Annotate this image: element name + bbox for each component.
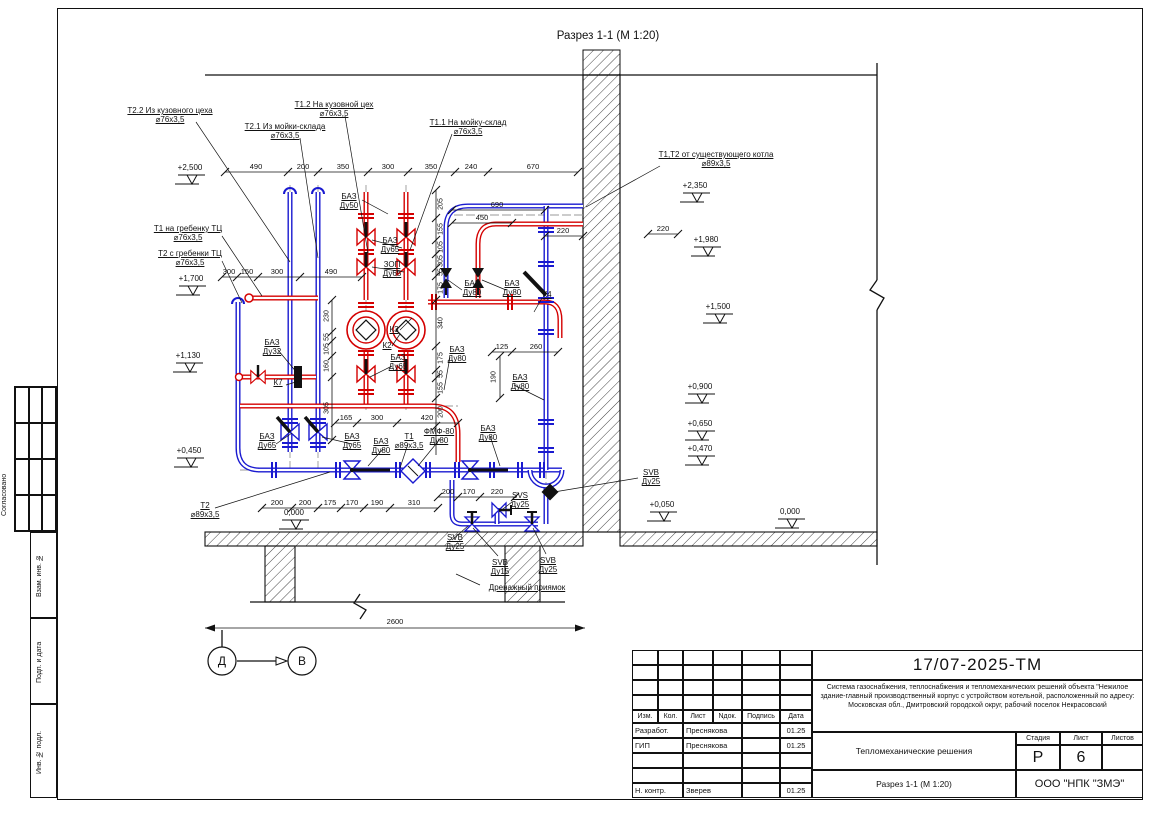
dimension-label: 300 [382,162,395,171]
strip-label-sign-date: Подп. и дата [36,626,43,698]
callout-k4: К4 [542,290,551,299]
elevation-mark: +1,700 [179,274,204,283]
dimension-label: 690 [491,200,504,209]
dimension-label: 310 [408,498,421,507]
callout-baz80-f: БАЗДу80 [479,424,498,442]
callout-baz65-a: БАЗДу65 [381,236,400,254]
view-marker-v: В [298,654,306,668]
tb-row-role [632,768,683,783]
dimension-label: 300 [223,267,236,276]
tb-col-podpis: Подпись [742,710,780,723]
approval-grid [14,386,57,532]
dimension-label: 55 [438,370,445,378]
tb-row-sign [742,768,780,783]
tb-company: ООО "НПК "ЗМЭ" [1016,770,1143,798]
dimension-label: 220 [557,226,570,235]
callout-k2: К2 [382,341,391,350]
callout-baz65-d: БАЗДу65 [343,432,362,450]
tb-row-date [780,753,812,768]
section-title: Разрез 1-1 (М 1:20) [557,30,659,42]
tb-col-izm: Изм. [632,710,658,723]
tb-row-role: Разработ. [632,723,683,738]
dimension-label: 300 [371,413,384,422]
dimension-label: 155 [438,382,445,394]
callout-svs25: SVSДу25 [511,491,530,509]
dimension-label: 240 [465,162,478,171]
tb-row-sign [742,753,780,768]
elevation-mark: +0,470 [688,444,713,453]
tb-col-ndok: Nдок. [713,710,742,723]
callout-svb25-b: SVBДу25 [446,533,465,551]
dimension-label-total: 2600 [387,617,404,626]
view-marker-d: Д [218,654,226,668]
callout-svb25-c: SVBДу25 [539,556,558,574]
dimension-label: 150 [241,267,254,276]
tb-row-date: 01.25 [780,783,812,798]
dimension-label: 200 [297,162,310,171]
valve-k7 [294,366,302,388]
callout-baz80-c: БАЗДу80 [448,345,467,363]
tb-sheet-value: 6 [1060,745,1102,770]
tb-doc-number: 17/07-2025-ТМ [812,650,1143,680]
tb-stage-value: Р [1016,745,1060,770]
tb-sheets-value [1102,745,1143,770]
callout-baz80-a: БАЗДу80 [463,279,482,297]
callout-baz80-b: БАЗДу80 [503,279,522,297]
callout-t2-pipe: Т2⌀89х3,5 [191,501,220,519]
dimension-label: 190 [371,498,384,507]
callout-baz65-b: БАЗДу65 [389,353,408,371]
callout-drain-pit: Дренажный приямок [489,583,565,592]
callout-baz80-e: БАЗДу80 [372,437,391,455]
callout-fmf80: ФМФ-80Ду80 [424,427,454,445]
dimension-label: 230 [324,310,331,322]
tb-row-name: Преснякова [683,738,742,753]
dimension-label: 190 [491,371,498,383]
dimension-label: 300 [271,267,284,276]
tb-row-sign [742,723,780,738]
tb-row-name [683,768,742,783]
dimension-label: 170 [463,487,476,496]
strip-label-inv-alt: Взам. инв. № [36,540,43,612]
drawing-sheet: Разрез 1-1 (М 1:20) Т2.2 Из кузовного це… [0,0,1152,813]
elevation-mark: +2,350 [683,181,708,190]
dimension-label: 105 [324,343,331,355]
dimension-label: 450 [476,213,489,222]
elevation-mark: +0,450 [177,446,202,455]
dimension-label: 350 [425,162,438,171]
elevation-mark: +0,050 [650,500,675,509]
callout-baz65-c: БАЗДу65 [258,432,277,450]
callout-t11: Т1.1 На мойку-склад⌀76х3,5 [430,118,507,136]
elevation-mark: +0,650 [688,419,713,428]
pit-wall-left [265,546,295,602]
callout-k3: К3 [389,325,398,334]
dimension-label: 420 [421,413,434,422]
tb-row-sign [742,738,780,753]
dimension-label: 350 [337,162,350,171]
dimension-label: 55 [324,333,331,341]
pump-k2 [347,311,385,349]
dimension-label: 220 [657,224,670,233]
dimension-label: 200 [299,498,312,507]
tb-row-sign [742,783,780,798]
dimension-label: 200 [438,406,445,418]
pit-wall-right [505,546,540,602]
tb-row-date: 01.25 [780,738,812,753]
title-block-empty-grid [632,650,812,710]
dimension-label: 260 [530,342,543,351]
dimension-label: 175 [324,498,337,507]
tb-view-title: Разрез 1-1 (М 1:20) [812,770,1016,798]
callout-boiler: Т1,Т2 от существующего котла⌀89х3,5 [659,150,774,168]
dimension-label: 305 [438,255,445,267]
tb-row-name: Зверев [683,783,742,798]
dimension-label: 170 [346,498,359,507]
dimension-label: 220 [491,487,504,496]
strip-label-approved: Согласовано [1,455,8,535]
tb-row-date: 01.25 [780,723,812,738]
elevation-mark: +1,500 [706,302,731,311]
dimension-label: 200 [271,498,284,507]
dimension-label: 200 [442,487,455,496]
callout-baz50: БАЗДу50 [340,192,359,210]
tb-row-name: Преснякова [683,723,742,738]
dimension-label: 155 [438,223,445,235]
dimension-label: 490 [250,162,263,171]
tb-description: Система газоснабжения, теплоснабжения и … [812,680,1143,732]
dimension-label: 305 [324,402,331,414]
dimension-label: 205 [438,198,445,210]
tb-sheet-label: Лист [1060,732,1102,745]
callout-t12: Т1.2 На кузовной цех⌀76х3,5 [295,100,374,118]
elevation-mark: +1,130 [176,351,201,360]
elevation-mark: 0,000 [780,507,800,516]
dimension-label: 670 [527,162,540,171]
dimension-label: 165 [340,413,353,422]
tb-sheets-label: Листов [1102,732,1143,745]
strip-label-inv-orig: Инв. № подл. [36,712,43,792]
strip-cell [30,618,57,704]
callout-t21: Т2.1 Из мойки-склада⌀76х3,5 [245,122,326,140]
tb-row-date [780,768,812,783]
tb-col-data: Дата [780,710,812,723]
dimension-label: 125 [496,342,509,351]
callout-baz80-d: БАЗДу80 [511,373,530,391]
tb-section-name: Тепломеханические решения [812,732,1016,770]
callout-svb25-a: SVBДу25 [642,468,661,486]
callout-grebenka-t1: Т1 на гребенку ТЦ⌀76х3,5 [154,224,222,242]
dimension-label: 490 [325,267,338,276]
callout-grebenka-t2: Т2 с гребенки ТЦ⌀76х3,5 [158,249,222,267]
dimension-label: 175 [438,282,445,294]
tb-row-role [632,753,683,768]
dimension-label: 340 [438,317,445,329]
tb-row-role: Н. контр. [632,783,683,798]
strip-cell [30,704,57,798]
callout-baz32: БАЗДу32 [263,338,282,356]
callout-svb15: SVBДу15 [491,558,510,576]
strip-cell [30,532,57,618]
dimension-label: 55 [438,268,445,276]
tb-col-list: Лист [683,710,713,723]
dimension-label: 105 [438,241,445,253]
callout-t1-pipe: Т1⌀89х3,5 [395,432,424,450]
elevation-mark: 0,000 [284,508,304,517]
elevation-mark: +1,980 [694,235,719,244]
tb-row-name [683,753,742,768]
callout-zop65: ЗОПДу65 [383,260,402,278]
tb-stage-label: Стадия [1016,732,1060,745]
callout-k7: К7 [273,378,282,387]
callout-t22: Т2.2 Из кузовного цеха⌀76х3,5 [127,106,212,124]
dimension-label: 175 [438,352,445,364]
elevation-mark: +0,900 [688,382,713,391]
tb-col-kol: Кол. [658,710,683,723]
dimension-label: 160 [324,360,331,372]
tb-row-role: ГИП [632,738,683,753]
elevation-mark: +2,500 [178,163,203,172]
view-markers [208,630,316,675]
